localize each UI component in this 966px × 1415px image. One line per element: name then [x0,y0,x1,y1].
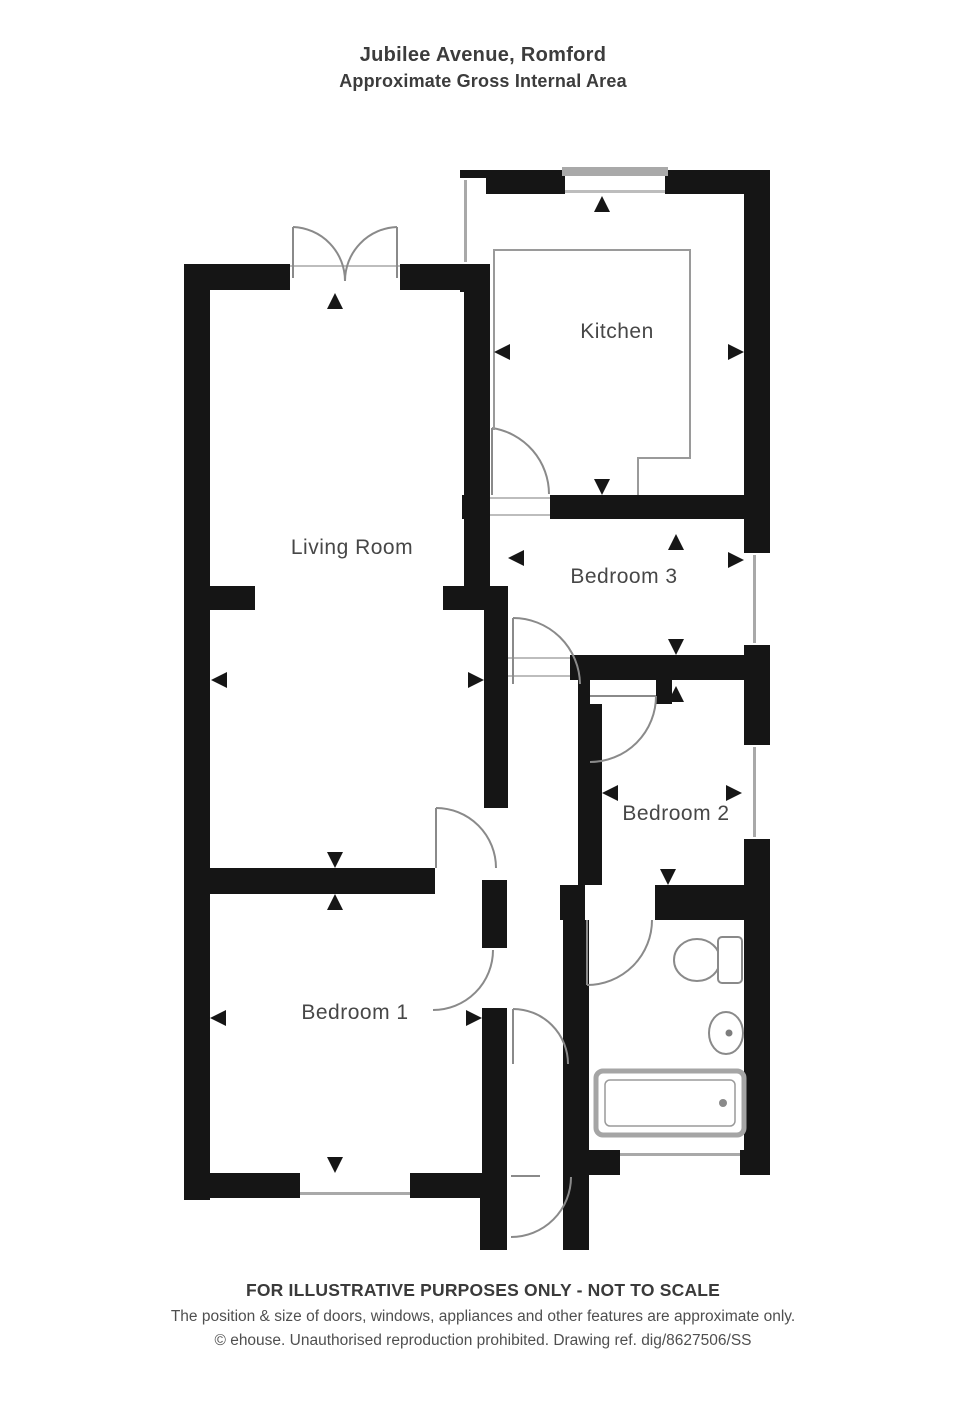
footer-approximate-note: The position & size of doors, windows, a… [0,1308,966,1326]
arrow-right-bedroom3 [728,552,744,568]
kitchen-window-top [562,167,668,194]
wall-entrance-stub-left [480,1173,507,1250]
kitchen-door [492,428,549,495]
living-room-door [436,808,496,868]
bedroom2-window [744,745,770,839]
arrow-left-bedroom1 [210,1010,226,1026]
footer-copyright: © ehouse. Unauthorised reproduction proh… [0,1332,966,1350]
floorplan-drawing: Kitchen Living Room Bedroom 3 Bedroom 2 … [0,0,966,1415]
front-door [511,1176,571,1237]
label-bedroom2: Bedroom 2 [622,802,729,825]
bathtub [596,1071,744,1135]
sink [709,1012,743,1054]
label-kitchen: Kitchen [580,320,654,343]
footer-disclaimer: FOR ILLUSTRATIVE PURPOSES ONLY - NOT TO … [0,1280,966,1301]
wall-living-right-upper [464,290,490,586]
hall-inner-door [513,1009,568,1064]
arrow-down-bedroom2 [660,869,676,885]
floorplan-page: Jubilee Avenue, Romford Approximate Gros… [0,0,966,1410]
bathroom-door [587,920,652,985]
label-bedroom1: Bedroom 1 [301,1001,408,1024]
arrow-right-bedroom1 [466,1010,482,1026]
opening-bathroom-door [585,885,655,920]
arrow-down-kitchen [594,479,610,495]
wall-hall-left-upper [484,610,508,808]
wall-pier-right [443,586,508,610]
floorplan-svg: Kitchen Living Room Bedroom 3 Bedroom 2 … [0,0,966,1410]
arrow-up-bedroom1 [327,894,343,910]
kitchen-counter [494,250,690,495]
toilet [674,937,742,983]
bedroom1-window [300,1173,410,1198]
label-bedroom3: Bedroom 3 [570,565,677,588]
bathroom-window [620,1150,740,1175]
arrow-down-living [327,852,343,868]
footer-block: FOR ILLUSTRATIVE PURPOSES ONLY - NOT TO … [0,1280,966,1350]
arrow-left-bedroom3 [508,550,524,566]
arrow-up-living [327,293,343,309]
arrow-left-kitchen [494,344,510,360]
bedroom3-window [744,553,770,645]
wall-left-exterior [184,264,210,1200]
wall-right-exterior [744,170,770,1175]
wall-living-bottom [184,868,435,894]
opening-bedroom2-door [590,680,656,704]
arrow-up-bedroom3 [668,534,684,550]
wall-pier-left [210,586,255,610]
label-living-room: Living Room [291,536,413,559]
kitchen-window-left [460,178,486,264]
wall-bedroom2-left [578,704,602,885]
arrow-down-bedroom1 [327,1157,343,1173]
arrow-up-kitchen [594,196,610,212]
arrow-right-living [468,672,484,688]
arrow-down-bedroom3 [668,639,684,655]
arrow-right-kitchen [728,344,744,360]
arrow-right-bedroom2 [726,785,742,801]
arrow-left-living [211,672,227,688]
windows [300,167,770,1198]
arrow-left-bedroom2 [602,785,618,801]
